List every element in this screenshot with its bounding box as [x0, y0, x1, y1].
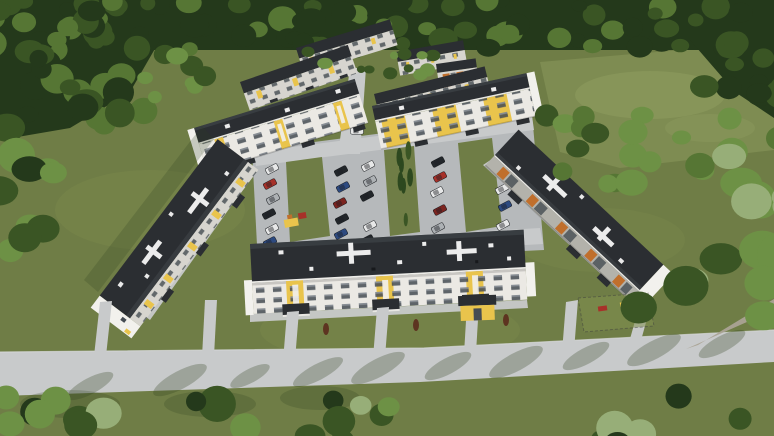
tree	[476, 39, 500, 57]
tree	[105, 99, 135, 128]
tree	[654, 19, 679, 37]
conifer-tree	[404, 213, 408, 226]
tree	[601, 21, 625, 40]
tree	[404, 64, 414, 72]
tree	[731, 183, 772, 219]
pavilion-roof	[458, 295, 496, 306]
tree	[323, 406, 356, 436]
conifer-tree	[397, 148, 403, 167]
gable-end	[525, 262, 536, 296]
pavilion-door	[473, 308, 481, 320]
roof-hatch	[475, 260, 478, 263]
tree	[648, 8, 663, 20]
tree	[426, 50, 441, 61]
tree	[746, 83, 772, 102]
tree	[672, 131, 691, 145]
tree	[615, 170, 647, 196]
render-viewport	[0, 0, 774, 436]
tree	[148, 91, 162, 103]
tree	[413, 69, 427, 81]
tree	[416, 51, 427, 59]
tree	[716, 76, 742, 99]
tree	[688, 14, 704, 27]
tree	[67, 94, 99, 121]
tree	[59, 2, 75, 17]
tree	[712, 144, 746, 169]
tree	[663, 266, 708, 306]
tree	[25, 400, 55, 429]
tree	[638, 151, 661, 172]
tree	[572, 1, 588, 12]
tree	[725, 58, 744, 72]
tree	[331, 2, 356, 23]
tree	[78, 1, 106, 22]
tree	[364, 66, 375, 74]
tree	[623, 18, 643, 37]
roof-vent	[309, 267, 313, 271]
tree	[124, 36, 150, 61]
tree	[553, 162, 573, 180]
tree	[29, 50, 47, 67]
ornamental-shrub	[323, 323, 329, 335]
roof-vent	[278, 250, 283, 254]
ornamental-shrub	[503, 314, 509, 326]
tree	[499, 25, 519, 42]
tree	[618, 120, 647, 145]
tree	[40, 162, 67, 183]
tree	[700, 243, 743, 274]
conifer-tree	[398, 172, 404, 191]
tree	[231, 24, 256, 47]
roof-vent	[422, 242, 426, 246]
pavilion	[458, 295, 497, 321]
tree	[186, 392, 206, 411]
roof-hatch	[371, 267, 375, 270]
play-structure	[287, 214, 293, 219]
tree	[547, 28, 571, 48]
tree	[166, 48, 188, 65]
tree	[729, 3, 753, 23]
tree	[598, 175, 618, 193]
tree	[725, 31, 749, 54]
aerial-render	[0, 0, 774, 436]
tree	[297, 8, 326, 34]
tree	[12, 12, 36, 32]
roof-vent	[507, 256, 511, 260]
tree	[137, 72, 153, 84]
tree	[383, 67, 397, 79]
tree	[8, 223, 41, 252]
tree	[302, 47, 315, 57]
tree	[350, 396, 372, 415]
roof-vent	[488, 243, 493, 247]
tree	[752, 48, 774, 67]
tree	[685, 153, 714, 178]
tree	[398, 48, 412, 60]
tree	[317, 58, 333, 69]
tree	[47, 32, 66, 48]
tree	[566, 140, 589, 158]
roof-vent	[397, 260, 402, 264]
tree	[729, 408, 752, 430]
tree	[581, 123, 609, 144]
tree	[621, 292, 657, 324]
tree	[718, 108, 742, 130]
tree	[194, 66, 216, 86]
tree	[671, 39, 689, 52]
conifer-tree	[406, 141, 412, 160]
tree	[690, 75, 719, 98]
tree	[666, 384, 692, 409]
tree	[390, 51, 399, 59]
tree	[583, 39, 602, 53]
roof-vent	[456, 241, 462, 261]
tree	[180, 13, 209, 37]
tree	[378, 397, 400, 416]
ornamental-shrub	[413, 319, 419, 331]
tree	[627, 36, 653, 58]
conifer-tree	[407, 168, 413, 186]
